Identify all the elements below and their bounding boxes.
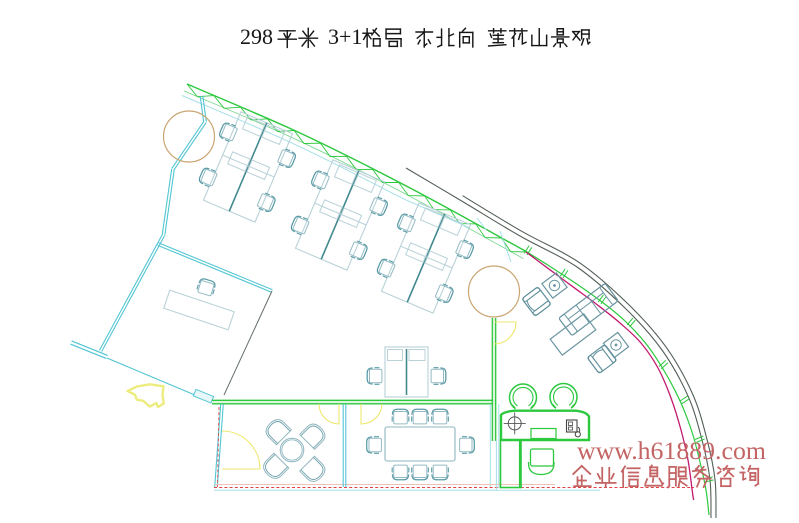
svg-text:298: 298	[240, 24, 273, 49]
svg-text:3+1: 3+1	[328, 24, 362, 49]
svg-text:www.h61889.com: www.h61889.com	[577, 436, 766, 465]
